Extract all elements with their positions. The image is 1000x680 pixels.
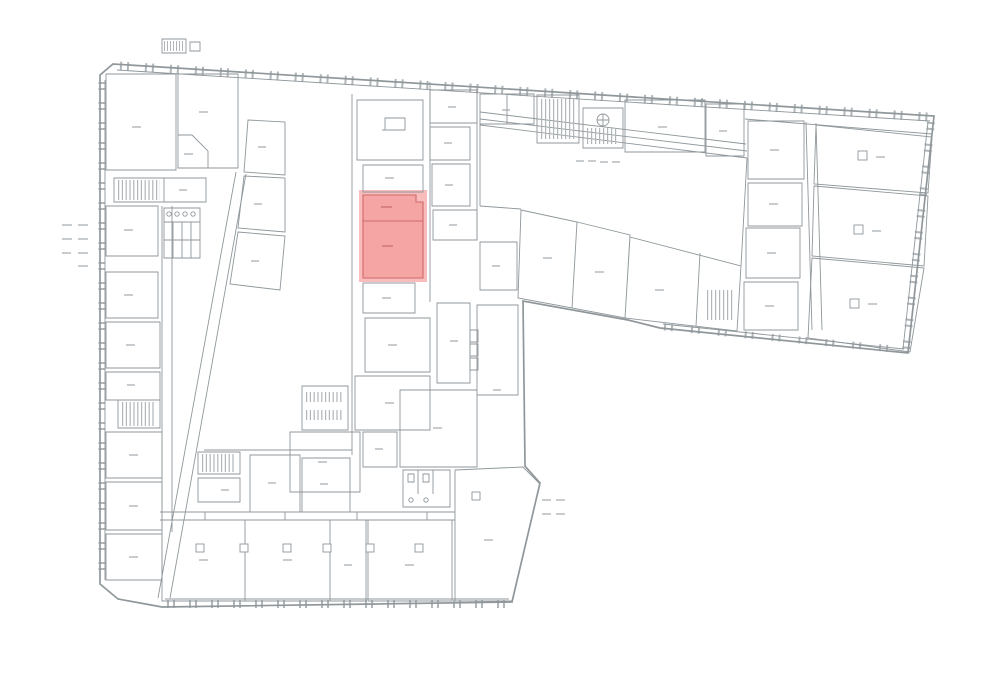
annotation-ticks-courtyard: [576, 161, 620, 162]
selected-room-upper[interactable]: [363, 195, 423, 221]
wc-fixture: [175, 212, 179, 216]
floor-plan-svg: [0, 0, 1000, 680]
annotation-ticks-left: [62, 225, 88, 266]
room-label-dashes: [124, 107, 885, 565]
wc-fixture: [424, 498, 428, 502]
wc-fixture: [167, 212, 171, 216]
wc-fixture: [409, 498, 413, 502]
interior-walls: [105, 39, 932, 601]
room-outline: [480, 94, 744, 156]
wc-fixture: [183, 212, 187, 216]
corridor-lines: [158, 172, 352, 598]
selected-room-lower[interactable]: [363, 221, 423, 278]
wc-fixture: [191, 212, 195, 216]
annotation-ticks-bottom-right: [542, 500, 565, 514]
highlighted-room-fill[interactable]: [363, 195, 423, 278]
room-outline: [744, 121, 932, 352]
room-outline: [106, 74, 240, 580]
corridor-lines: [663, 122, 928, 349]
wall-lines: [105, 70, 930, 580]
building-outline: [100, 64, 934, 607]
corridor-lines: [160, 512, 509, 599]
floor-plan-page: [0, 0, 1000, 680]
